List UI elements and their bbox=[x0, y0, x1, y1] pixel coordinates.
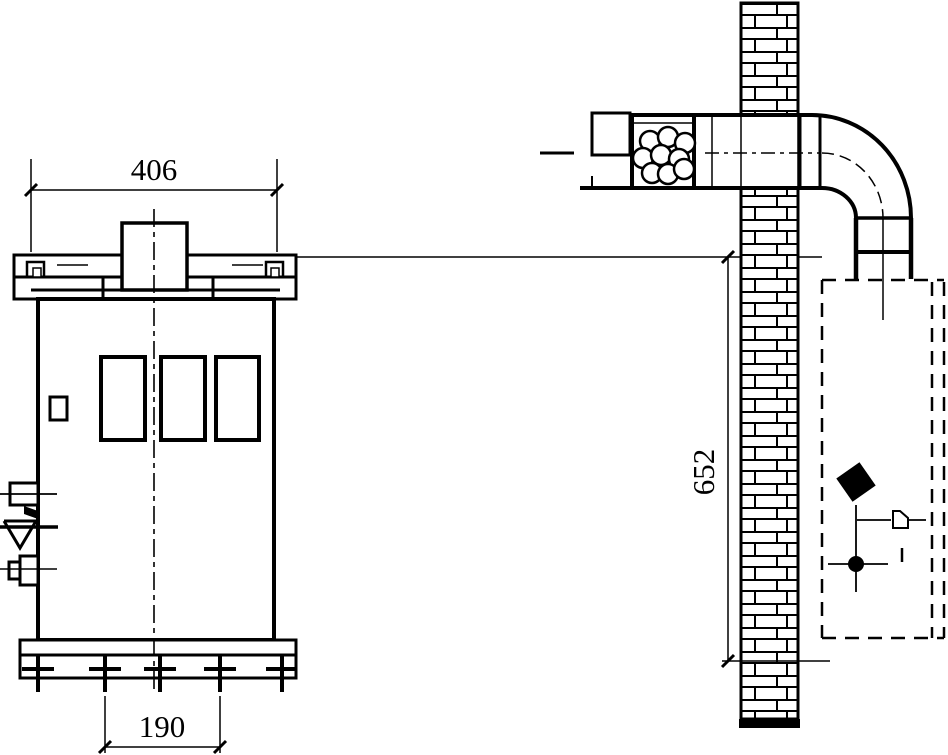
flue-elbow bbox=[812, 115, 911, 218]
drawing-canvas: 406 bbox=[0, 0, 948, 755]
brick-wall-lower bbox=[741, 188, 798, 719]
appliance-dashed-outline bbox=[822, 280, 944, 638]
appliance-symbols bbox=[828, 459, 926, 592]
flange-top-notch bbox=[57, 257, 88, 265]
wall-base-bar bbox=[739, 719, 800, 728]
dimension-anchor-spacing: 190 bbox=[99, 696, 226, 753]
dimension-label-190: 190 bbox=[139, 709, 186, 744]
dimension-label-406: 406 bbox=[131, 152, 178, 187]
top-flange bbox=[14, 223, 296, 299]
side-view: 652 bbox=[540, 3, 944, 728]
heater-body bbox=[38, 299, 274, 640]
dimension-label-652: 652 bbox=[686, 449, 721, 496]
terminal-holes bbox=[633, 127, 695, 184]
duct-end-cap bbox=[592, 113, 630, 155]
igniter-symbol bbox=[893, 511, 908, 528]
flange-top-notch bbox=[232, 257, 263, 265]
technical-drawing: 406 bbox=[0, 0, 948, 755]
gas-valve-diamond bbox=[833, 459, 879, 505]
flue-pipe bbox=[856, 218, 911, 320]
brick-wall-upper bbox=[741, 3, 798, 115]
base-plate bbox=[20, 640, 296, 692]
flue-duct bbox=[540, 113, 822, 188]
